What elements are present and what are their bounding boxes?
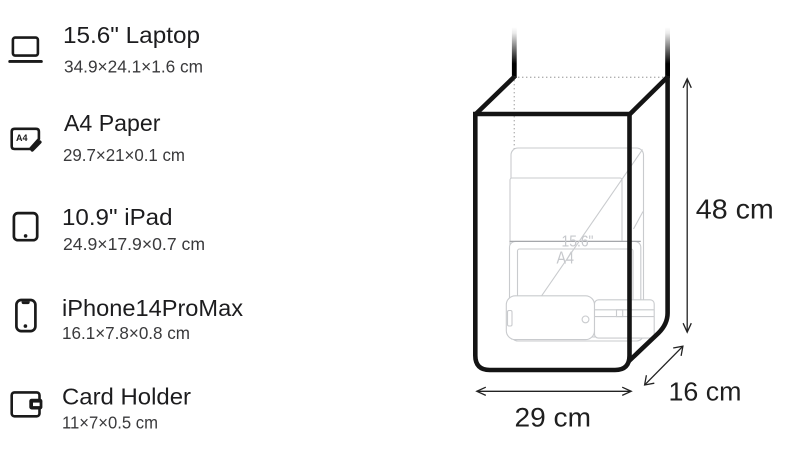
svg-text:24.9×17.9×0.7 cm: 24.9×17.9×0.7 cm [63, 234, 205, 254]
svg-text:48 cm: 48 cm [696, 194, 774, 225]
svg-text:11×7×0.5 cm: 11×7×0.5 cm [62, 412, 158, 432]
svg-text:34.9×24.1×1.6 cm: 34.9×24.1×1.6 cm [64, 56, 203, 76]
svg-text:A4 Paper: A4 Paper [64, 110, 161, 136]
svg-text:15.6" Laptop: 15.6" Laptop [63, 22, 200, 48]
svg-text:29 cm: 29 cm [515, 403, 592, 433]
svg-text:iPhone14ProMax: iPhone14ProMax [62, 295, 243, 321]
svg-text:16.1×7.8×0.8 cm: 16.1×7.8×0.8 cm [62, 323, 190, 343]
svg-text:10.9" iPad: 10.9" iPad [62, 204, 173, 230]
svg-text:Card Holder: Card Holder [62, 384, 191, 410]
svg-text:A4: A4 [16, 133, 28, 143]
svg-text:A4: A4 [557, 248, 575, 268]
svg-text:29.7×21×0.1 cm: 29.7×21×0.1 cm [63, 145, 185, 165]
svg-text:16 cm: 16 cm [669, 378, 742, 406]
